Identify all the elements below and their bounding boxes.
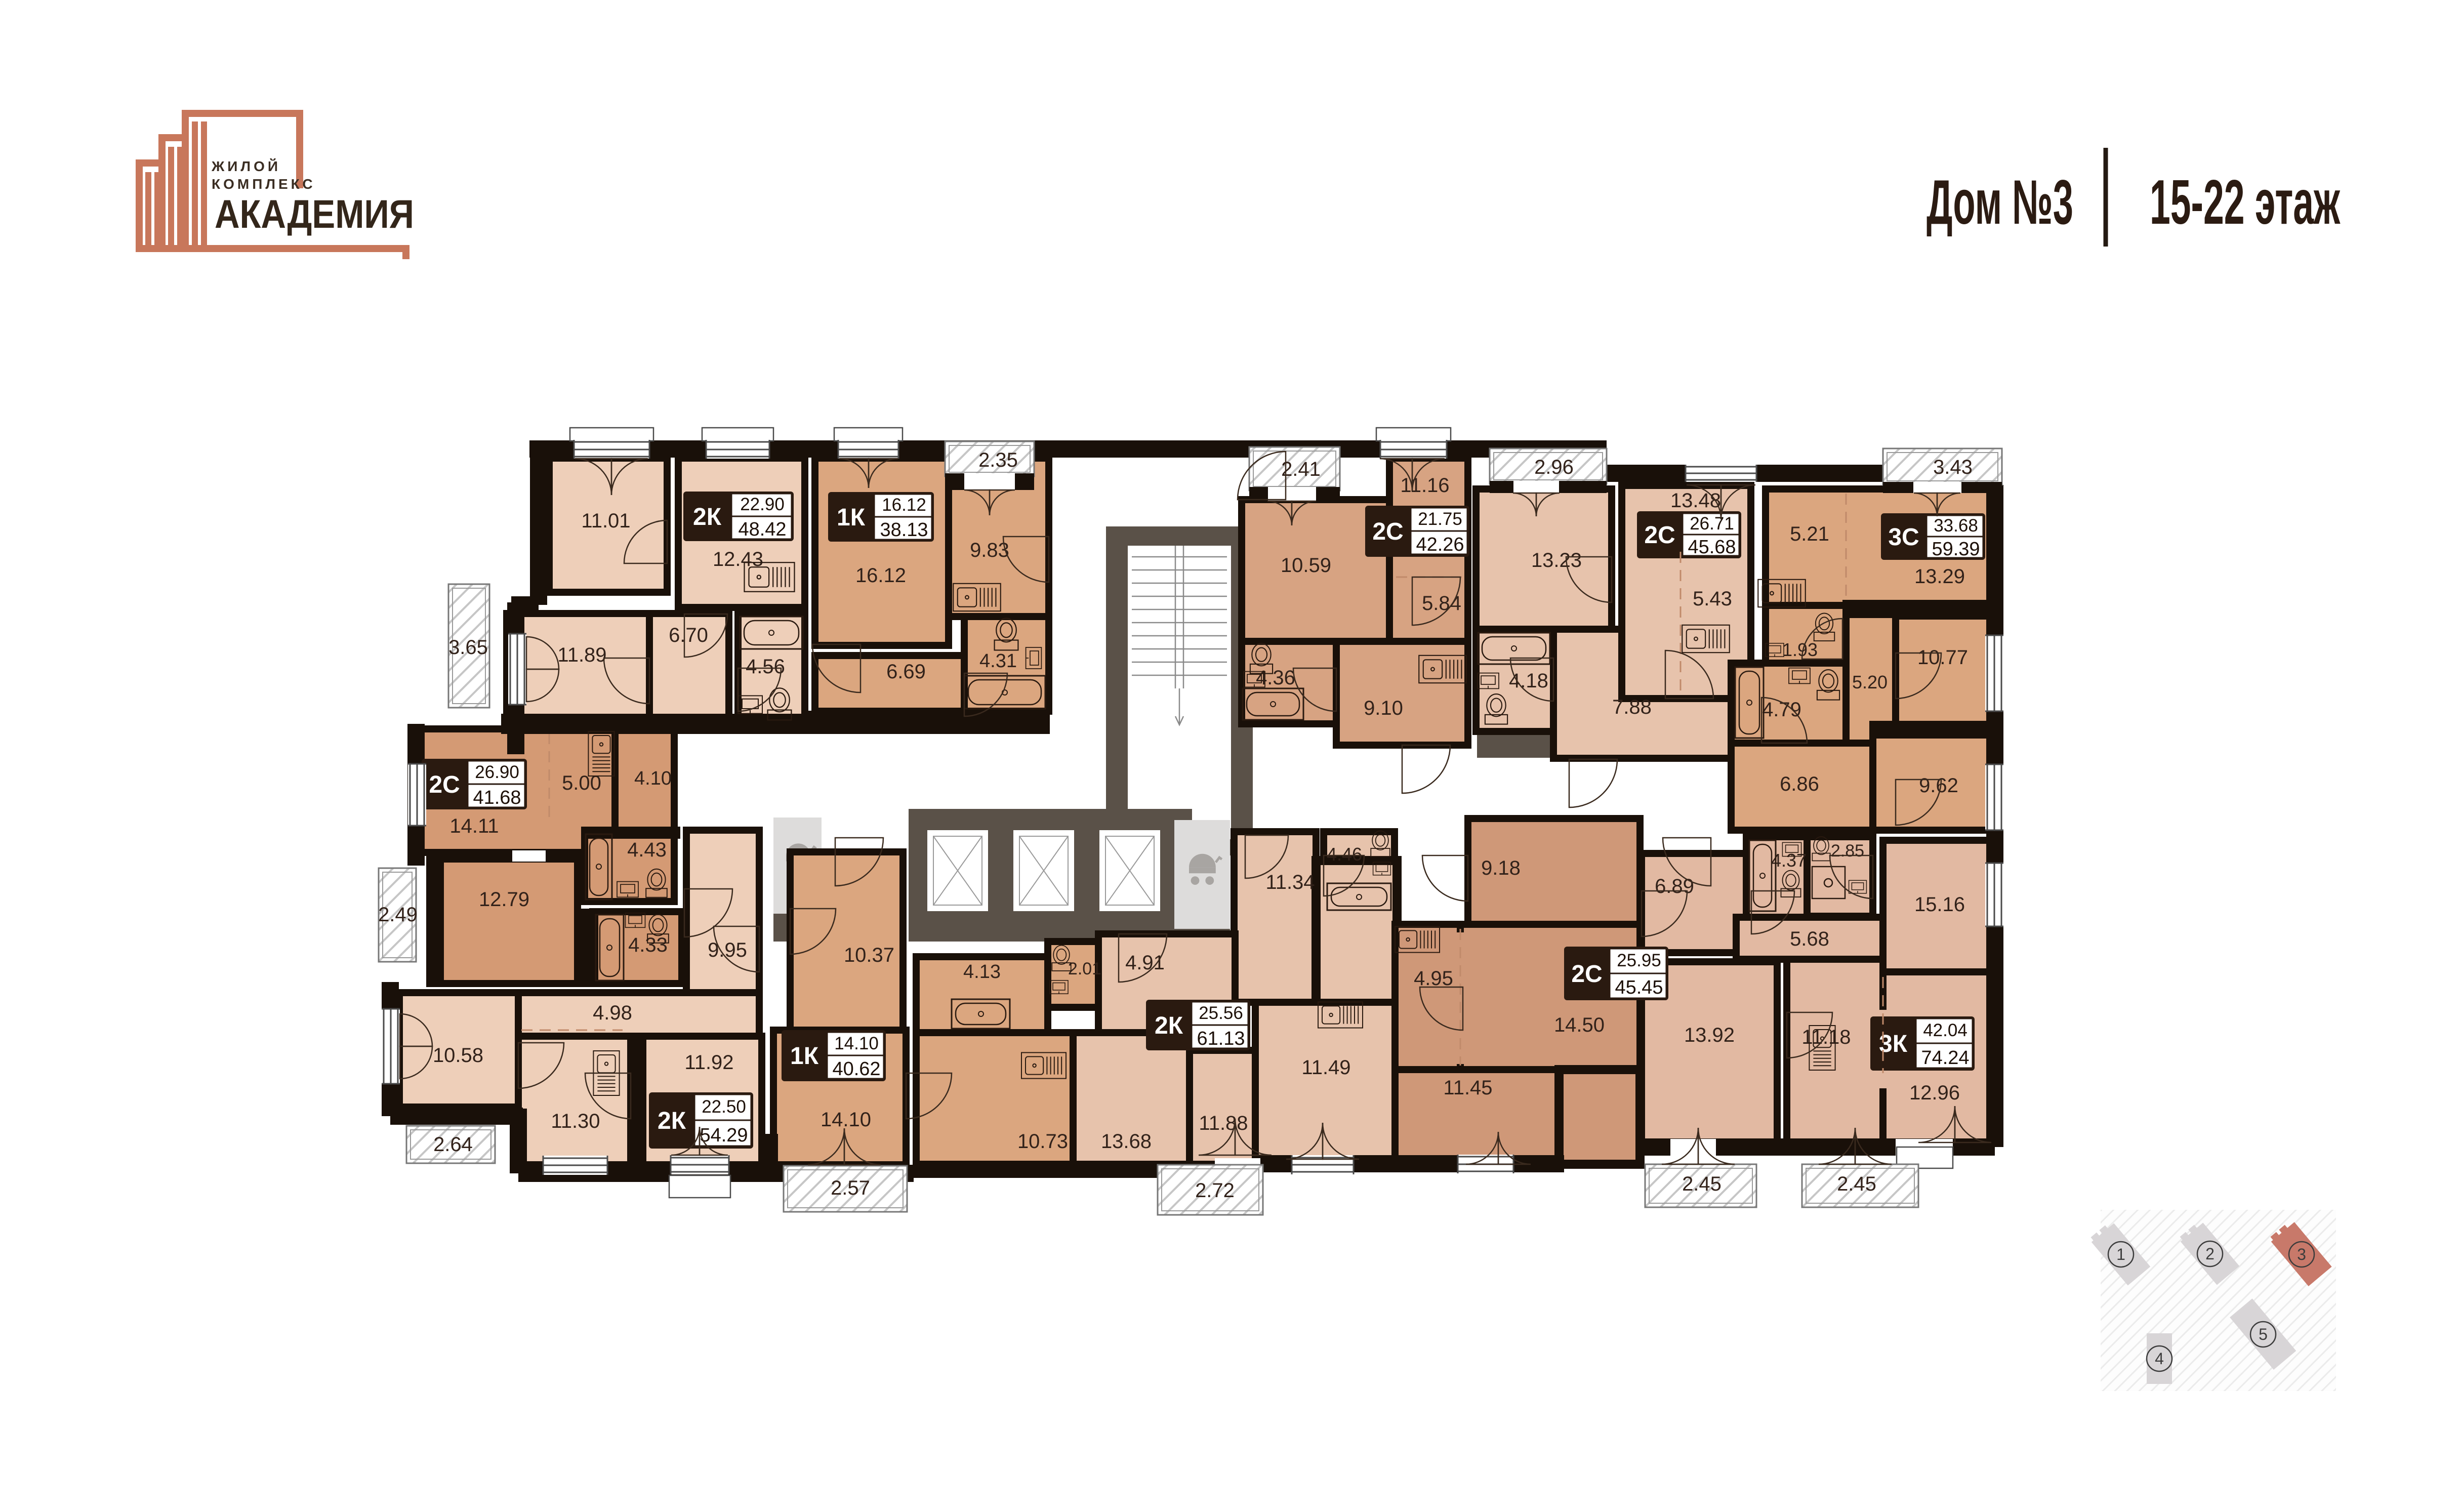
svg-text:22.50: 22.50	[702, 1097, 746, 1117]
svg-text:КОМПЛЕКС: КОМПЛЕКС	[212, 176, 316, 192]
svg-text:45.45: 45.45	[1615, 977, 1663, 998]
svg-text:2С: 2С	[1644, 522, 1675, 549]
svg-text:10.59: 10.59	[1281, 554, 1331, 577]
svg-text:3: 3	[2297, 1245, 2306, 1263]
svg-text:1К: 1К	[837, 504, 866, 531]
svg-text:74.24: 74.24	[1921, 1047, 1969, 1069]
svg-text:3С: 3С	[1888, 524, 1919, 551]
svg-text:2К: 2К	[1155, 1012, 1183, 1039]
svg-text:4.10: 4.10	[634, 768, 672, 789]
svg-text:АКАДЕМИЯ: АКАДЕМИЯ	[215, 191, 414, 236]
svg-text:2.57: 2.57	[831, 1177, 870, 1199]
svg-text:15.16: 15.16	[1914, 893, 1965, 916]
svg-text:25.56: 25.56	[1199, 1003, 1243, 1023]
svg-text:12.96: 12.96	[1909, 1082, 1960, 1104]
svg-text:26.90: 26.90	[475, 762, 519, 782]
svg-text:1К: 1К	[790, 1043, 819, 1070]
svg-text:26.71: 26.71	[1690, 514, 1734, 534]
svg-text:5.20: 5.20	[1852, 672, 1888, 692]
svg-text:11.45: 11.45	[1443, 1077, 1492, 1099]
svg-text:25.95: 25.95	[1617, 951, 1661, 970]
svg-text:2: 2	[2205, 1245, 2215, 1263]
svg-text:2.64: 2.64	[433, 1133, 473, 1156]
svg-text:4: 4	[2155, 1350, 2164, 1368]
svg-text:45.68: 45.68	[1688, 537, 1736, 558]
svg-text:33.68: 33.68	[1934, 516, 1978, 536]
svg-text:11.30: 11.30	[551, 1110, 600, 1132]
svg-text:5.68: 5.68	[1790, 928, 1829, 950]
svg-text:10.58: 10.58	[433, 1044, 483, 1067]
svg-text:2С: 2С	[429, 771, 460, 798]
svg-text:15-22 этаж: 15-22 этаж	[2150, 168, 2341, 237]
svg-text:4.98: 4.98	[593, 1002, 632, 1024]
svg-text:40.62: 40.62	[832, 1058, 880, 1080]
svg-text:2.72: 2.72	[1195, 1179, 1235, 1202]
svg-text:5: 5	[2259, 1325, 2268, 1343]
svg-text:14.11: 14.11	[449, 815, 499, 837]
svg-text:5.00: 5.00	[562, 772, 601, 794]
svg-text:11.88: 11.88	[1199, 1112, 1248, 1134]
svg-text:Дом №3: Дом №3	[1927, 168, 2073, 237]
svg-text:3.65: 3.65	[448, 636, 488, 659]
svg-text:2.01: 2.01	[1068, 959, 1101, 978]
svg-text:41.68: 41.68	[473, 787, 521, 808]
svg-text:21.75: 21.75	[1418, 509, 1462, 529]
svg-text:42.04: 42.04	[1923, 1020, 1968, 1040]
svg-text:11.16: 11.16	[1400, 474, 1449, 497]
svg-text:10.73: 10.73	[1017, 1130, 1068, 1153]
svg-text:5.43: 5.43	[1693, 588, 1732, 610]
svg-text:22.90: 22.90	[740, 495, 785, 514]
svg-text:6.86: 6.86	[1780, 773, 1819, 795]
svg-text:9.10: 9.10	[1364, 697, 1403, 719]
svg-text:2С: 2С	[1372, 518, 1403, 545]
svg-text:42.26: 42.26	[1416, 534, 1464, 555]
svg-text:16.12: 16.12	[882, 495, 926, 515]
svg-text:2.41: 2.41	[1281, 458, 1321, 480]
svg-text:4.31: 4.31	[979, 650, 1017, 672]
svg-text:48.42: 48.42	[738, 519, 786, 540]
svg-text:11.01: 11.01	[581, 510, 630, 532]
svg-text:13.48: 13.48	[1670, 489, 1721, 512]
svg-text:38.13: 38.13	[880, 519, 928, 541]
svg-text:11.89: 11.89	[557, 644, 606, 666]
svg-text:2К: 2К	[658, 1108, 686, 1134]
svg-text:16.12: 16.12	[855, 564, 906, 587]
svg-text:2.49: 2.49	[378, 904, 418, 926]
svg-text:2С: 2С	[1571, 961, 1602, 988]
svg-text:2.45: 2.45	[1682, 1173, 1722, 1195]
svg-text:10.37: 10.37	[844, 944, 894, 966]
svg-text:14.10: 14.10	[821, 1109, 871, 1131]
svg-text:12.79: 12.79	[479, 888, 529, 911]
svg-text:13.29: 13.29	[1914, 565, 1965, 588]
svg-text:54.29: 54.29	[700, 1125, 748, 1146]
svg-text:2.45: 2.45	[1837, 1173, 1876, 1195]
svg-text:61.13: 61.13	[1197, 1028, 1245, 1049]
svg-text:2.96: 2.96	[1534, 456, 1574, 478]
svg-text:11.34: 11.34	[1265, 871, 1315, 893]
svg-text:ЖИЛОЙ: ЖИЛОЙ	[211, 158, 281, 174]
svg-text:14.50: 14.50	[1554, 1014, 1605, 1036]
svg-text:11.49: 11.49	[1301, 1056, 1350, 1079]
svg-text:7.88: 7.88	[1612, 696, 1652, 718]
svg-text:13.68: 13.68	[1101, 1130, 1152, 1153]
svg-text:59.39: 59.39	[1932, 539, 1980, 560]
svg-text:2.35: 2.35	[978, 449, 1018, 471]
svg-text:4.43: 4.43	[627, 839, 667, 861]
svg-text:13.92: 13.92	[1684, 1024, 1735, 1046]
svg-text:9.18: 9.18	[1481, 857, 1521, 879]
svg-text:5.21: 5.21	[1790, 523, 1829, 545]
svg-text:3.43: 3.43	[1933, 456, 1973, 478]
svg-text:6.69: 6.69	[886, 661, 926, 683]
svg-text:14.10: 14.10	[834, 1034, 879, 1053]
svg-text:2К: 2К	[693, 504, 722, 530]
svg-text:4.13: 4.13	[963, 961, 1001, 983]
svg-text:4.95: 4.95	[1414, 967, 1453, 990]
svg-text:11.92: 11.92	[684, 1051, 733, 1074]
svg-text:1: 1	[2116, 1245, 2125, 1263]
